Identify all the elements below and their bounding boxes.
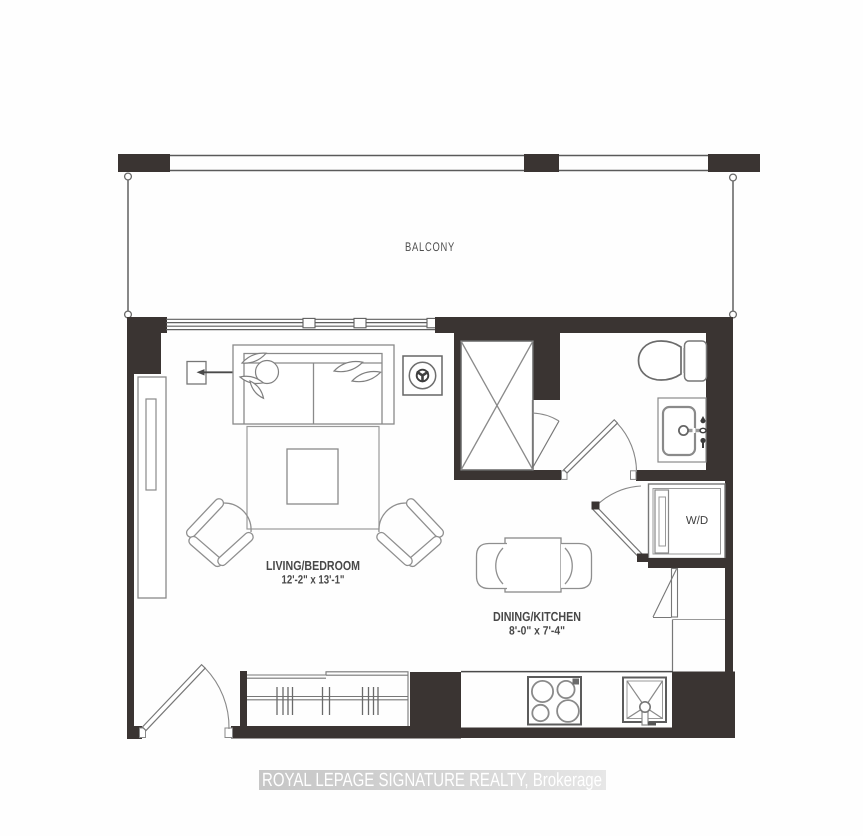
svg-text:W/D: W/D bbox=[686, 515, 708, 527]
svg-text:8'-0" x 7'-4": 8'-0" x 7'-4" bbox=[509, 624, 565, 638]
svg-text:BALCONY: BALCONY bbox=[405, 240, 455, 254]
svg-text:ROYAL LEPAGE SIGNATURE REALTY,: ROYAL LEPAGE SIGNATURE REALTY, Brokerage bbox=[262, 770, 602, 791]
svg-text:LIVING/BEDROOM: LIVING/BEDROOM bbox=[266, 558, 360, 573]
svg-text:DINING/KITCHEN: DINING/KITCHEN bbox=[493, 609, 581, 624]
svg-text:12'-2" x 13'-1": 12'-2" x 13'-1" bbox=[282, 573, 345, 587]
